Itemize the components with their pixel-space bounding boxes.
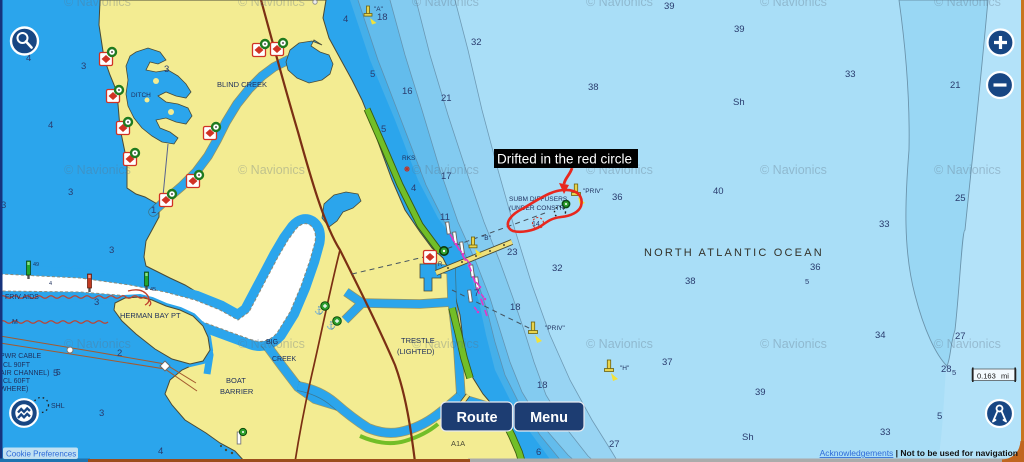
svg-text:© Navionics: © Navionics [934, 0, 1001, 9]
svg-text:© Navionics: © Navionics [238, 163, 305, 177]
svg-text:R: R [438, 262, 443, 268]
svg-text:mi: mi [1001, 372, 1009, 381]
svg-text:4: 4 [48, 120, 53, 131]
svg-text:36: 36 [810, 262, 821, 273]
svg-text:5: 5 [805, 277, 809, 286]
svg-text:38: 38 [685, 276, 696, 287]
svg-text:"PRIV": "PRIV" [583, 188, 603, 195]
svg-text:Route: Route [456, 410, 497, 426]
svg-text:Acknowledgements | Not to be u: Acknowledgements | Not to be used for na… [820, 448, 1018, 458]
svg-text:4: 4 [158, 446, 163, 457]
svg-text:39: 39 [664, 1, 675, 12]
svg-text:17: 17 [441, 171, 452, 182]
svg-text:28: 28 [941, 364, 952, 375]
svg-text:21: 21 [950, 80, 961, 91]
svg-text:5: 5 [952, 368, 956, 377]
svg-text:2: 2 [117, 348, 122, 359]
svg-text:TRESTLE: TRESTLE [401, 336, 435, 345]
svg-text:0.163: 0.163 [977, 372, 996, 381]
svg-text:3: 3 [68, 187, 73, 198]
svg-text:AIR CHANNEL): AIR CHANNEL) [0, 370, 49, 377]
svg-text:© Navionics: © Navionics [934, 337, 1001, 351]
svg-text:BLIND CREEK: BLIND CREEK [217, 80, 267, 89]
svg-text:Sh: Sh [742, 432, 754, 443]
svg-text:6: 6 [536, 447, 541, 458]
svg-text:4: 4 [343, 14, 348, 25]
svg-text:32: 32 [552, 263, 563, 274]
svg-text:CREEK: CREEK [272, 356, 296, 363]
svg-text:© Navionics: © Navionics [586, 0, 653, 9]
svg-text:18: 18 [537, 380, 548, 391]
svg-text:© Navionics: © Navionics [586, 337, 653, 351]
svg-text:7: 7 [474, 288, 479, 299]
svg-text:34: 34 [875, 330, 886, 341]
svg-text:CL 60FT: CL 60FT [3, 378, 31, 385]
svg-text:SHL: SHL [51, 403, 65, 410]
svg-text:3: 3 [99, 408, 104, 419]
svg-text:© Navionics: © Navionics [64, 0, 131, 9]
svg-text:"A": "A" [374, 6, 384, 13]
svg-text:39: 39 [734, 24, 745, 35]
svg-text:32: 32 [471, 37, 482, 48]
svg-text:⚓: ⚓ [314, 305, 324, 315]
svg-text:RKS: RKS [402, 155, 416, 162]
svg-text:37: 37 [662, 357, 673, 368]
svg-text:27: 27 [609, 439, 620, 450]
svg-text:33: 33 [879, 219, 890, 230]
svg-text:1: 1 [151, 205, 156, 216]
svg-text:21: 21 [441, 93, 452, 104]
svg-text:45: 45 [150, 287, 156, 293]
svg-text:"H": "H" [620, 365, 630, 372]
svg-text:© Navionics: © Navionics [760, 163, 827, 177]
svg-text:HERMAN BAY PT: HERMAN BAY PT [120, 311, 181, 320]
svg-text:FRIV AIDS: FRIV AIDS [5, 294, 39, 301]
svg-text:PWR CABLE: PWR CABLE [0, 353, 42, 360]
svg-text:36: 36 [612, 192, 623, 203]
svg-text:49: 49 [33, 262, 39, 268]
svg-text:M: M [12, 319, 18, 326]
svg-text:5: 5 [370, 69, 375, 80]
svg-text:© Navionics: © Navionics [934, 163, 1001, 177]
svg-text:BOAT: BOAT [226, 376, 246, 385]
svg-text:38: 38 [588, 82, 599, 93]
svg-text:BARRIER: BARRIER [220, 387, 254, 396]
svg-text:NORTH ATLANTIC OCEAN: NORTH ATLANTIC OCEAN [644, 247, 824, 259]
svg-text:© Navionics: © Navionics [760, 337, 827, 351]
svg-text:Sh: Sh [733, 97, 745, 108]
svg-text:A1A: A1A [451, 439, 465, 448]
svg-text:40: 40 [713, 186, 724, 197]
svg-text:"B": "B" [482, 235, 492, 242]
svg-text:4: 4 [49, 281, 52, 287]
svg-text:11: 11 [440, 212, 450, 223]
svg-text:27: 27 [955, 331, 966, 342]
svg-text:© Navionics: © Navionics [760, 0, 827, 9]
svg-text:© Navionics: © Navionics [64, 163, 131, 177]
svg-text:4: 4 [411, 183, 416, 194]
svg-text:23: 23 [507, 247, 518, 258]
svg-text:16: 16 [402, 86, 413, 97]
svg-text:18: 18 [377, 12, 388, 23]
svg-text:3: 3 [109, 245, 114, 256]
svg-text:3: 3 [94, 297, 99, 308]
svg-text:(LIGHTED): (LIGHTED) [397, 347, 435, 356]
svg-text:DITCH: DITCH [131, 92, 151, 99]
svg-text:33: 33 [845, 69, 856, 80]
svg-text:© Navionics: © Navionics [238, 0, 305, 9]
svg-text:3: 3 [81, 61, 86, 72]
svg-text:3: 3 [164, 64, 169, 75]
svg-text:33: 33 [880, 427, 891, 438]
svg-text:39: 39 [755, 387, 766, 398]
svg-text:Cookie Preferences: Cookie Preferences [6, 450, 76, 459]
svg-text:© Navionics: © Navionics [412, 0, 479, 9]
svg-text:18: 18 [510, 302, 521, 313]
svg-text:5: 5 [381, 124, 386, 135]
svg-text:5: 5 [937, 411, 942, 422]
svg-text:WHERE): WHERE) [0, 386, 28, 393]
svg-text:BIG: BIG [266, 339, 278, 346]
svg-text:Drifted in the red circle: Drifted in the red circle [497, 152, 632, 167]
svg-text:5: 5 [56, 367, 61, 377]
svg-text:CL 90FT: CL 90FT [3, 362, 31, 369]
svg-text:"PRIV": "PRIV" [545, 325, 565, 332]
svg-text:⚓: ⚓ [326, 320, 336, 330]
svg-text:Menu: Menu [530, 410, 568, 426]
svg-text:25: 25 [955, 193, 966, 204]
